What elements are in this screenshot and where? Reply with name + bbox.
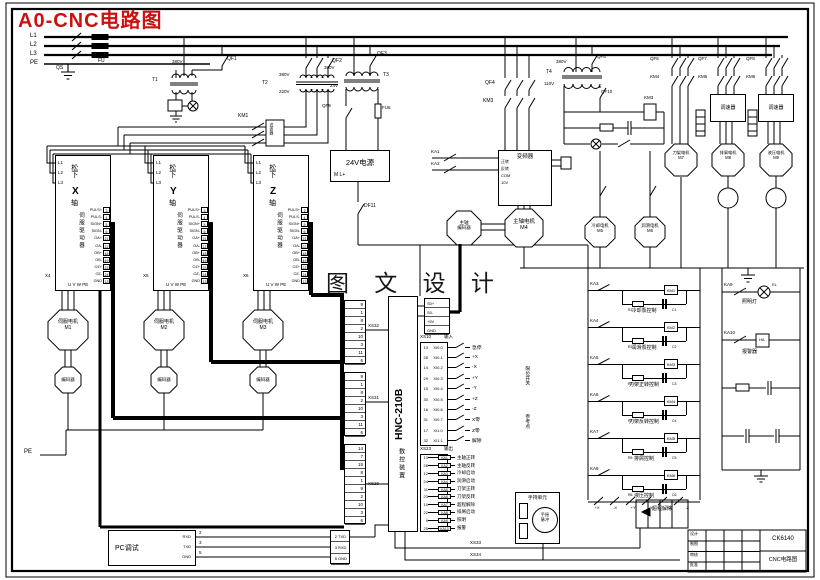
output-terminal-number: 23	[420, 494, 428, 499]
rung-wire	[588, 364, 700, 365]
encoder-2-label: 编码器	[151, 377, 177, 382]
rung-wire	[588, 290, 700, 291]
output-wire	[451, 520, 455, 521]
driver-pin-number: 3	[201, 207, 208, 213]
relay-coil: KA6	[438, 494, 451, 499]
ka2-label: KA2	[431, 162, 440, 167]
overtravel-label: +Y	[630, 505, 635, 510]
output-row: 12 KA3 冷却启动	[420, 470, 540, 478]
connector-pin: 2	[345, 325, 365, 333]
driver-pin-number: 24	[103, 271, 110, 277]
encoder-1-label: 编码器	[55, 377, 81, 382]
psu-title: 24V电源	[331, 157, 389, 168]
cnc-name: 数控装置	[397, 448, 404, 510]
rung-wire	[588, 327, 700, 328]
title-block-code: CK6140	[762, 536, 804, 543]
km3-label: KM3	[483, 99, 493, 105]
driver-pin-number: 48	[103, 250, 110, 256]
xs10-label: XS10	[420, 335, 431, 340]
cnc-model: HNC-210B	[394, 330, 406, 440]
input-switch	[456, 405, 464, 410]
driver-pin-row: SIGN+ 5	[186, 220, 208, 227]
input-terminal-number: 30	[420, 397, 428, 402]
input-terminal-number: 31	[420, 417, 428, 422]
driver-pin-number: 49	[103, 257, 110, 263]
driver-pin-number: 48	[301, 250, 308, 256]
output-signal-label: 报警	[457, 525, 466, 531]
overtravel-switch-label: -Z	[678, 505, 696, 510]
driver-pin-name: OZ+	[186, 265, 200, 269]
ladder-rung: KA4 KM2 R2 C2 润滑泵控制	[588, 315, 700, 352]
rung-function-label: 刀架反转控制	[602, 418, 686, 425]
driver-pin-name: OA+	[88, 236, 102, 240]
pc-pin: TXD	[169, 544, 191, 554]
driver-pin-number: 13	[201, 278, 208, 284]
input-signal-label: +Z	[472, 397, 478, 402]
driver-pin-row: OA+ 21	[88, 235, 110, 242]
fu6-label: FU6	[382, 106, 391, 111]
vfd-pin: COM	[501, 173, 510, 180]
servo-driver-x: L1L2L3 松下 X 轴 伺服驱动器 PULS+ 3 PULS- 4 SIGN…	[55, 155, 111, 291]
output-signal-label: 刀架反转	[457, 494, 475, 500]
ladder-rung: KA7 KM5 R5 C5 排屑控制	[588, 426, 700, 463]
title-block-row-label: 设计	[690, 531, 698, 541]
input-wire	[465, 430, 470, 431]
t1-voltage: 380V	[172, 60, 183, 65]
coil-label: KM4	[667, 399, 675, 404]
motor-m1-label: 伺服电机 M1	[48, 320, 88, 332]
driver-pin-number: 13	[301, 278, 308, 284]
title-block-row-label: 制图	[690, 541, 698, 551]
drive-box-m8: 调速器	[710, 94, 746, 122]
pendant-title: 手持单元	[516, 494, 559, 501]
driver-pin-row: OA- 22	[186, 242, 208, 249]
driver-x-pins: PULS+ 3 PULS- 4 SIGN+ 5 SIGN- 6 OA+ 21 O…	[88, 206, 110, 285]
title-block-row-label: 审核	[690, 552, 698, 562]
vfd-box: 变频器 正转反转COM10V	[498, 150, 552, 206]
input-wire	[448, 419, 456, 420]
input-signal-label: Z零	[472, 427, 480, 434]
pc-pin: GND	[169, 554, 191, 564]
rung-function-label: 润滑泵控制	[602, 344, 686, 351]
input-row: 14 XI0.2 -X	[420, 363, 540, 373]
input-signal-label: -Y	[472, 386, 477, 391]
driver-power-pin: L3	[58, 180, 63, 190]
phase-label-l3: L3	[30, 51, 37, 58]
spindle-motor-id: M4	[504, 225, 544, 231]
contact-label: KA8	[590, 466, 599, 471]
relay-coil: KA1	[438, 455, 451, 460]
driver-pin-name: OB-	[286, 258, 300, 262]
driver-pin-row: OZ- 24	[88, 271, 110, 278]
connector-pin: S0-	[425, 308, 449, 317]
overtravel-release-label: 超程解除	[652, 507, 672, 513]
input-row: 32 XI1.1 解除	[420, 436, 540, 446]
t2-label: T2	[262, 81, 268, 87]
driver-pin-name: OB-	[88, 258, 102, 262]
output-terminal-number: 28	[420, 463, 428, 468]
input-code: XI0.3	[428, 376, 448, 381]
driver-pin-row: OZ- 24	[186, 271, 208, 278]
pendant-connector-2	[519, 523, 528, 539]
driver-pin-name: OZ-	[286, 272, 300, 276]
driver-pin-row: GND 13	[88, 278, 110, 285]
driver-z-pins: PULS+ 3 PULS- 4 SIGN+ 5 SIGN- 6 OA+ 21 O…	[286, 206, 308, 285]
rung-function-label: 排屑控制	[602, 455, 686, 462]
connector-pin: 9	[345, 373, 365, 381]
ladder-rung: KA5 KM3 R3 C3 刀架正转控制	[588, 352, 700, 389]
fu-label: FU	[98, 59, 105, 65]
m1-id: M1	[48, 326, 88, 332]
input-switch	[456, 342, 464, 347]
driver-pin-row: PULS- 4	[286, 213, 308, 220]
output-signal-label: 主轴反转	[457, 463, 475, 469]
m7-id: M7	[665, 156, 697, 161]
branch-wire	[686, 438, 687, 452]
output-signal-label: 主轴正转	[457, 455, 475, 461]
km4-label: KM4	[650, 75, 659, 80]
branch-wire	[686, 327, 687, 341]
driver-pin-row: GND 13	[286, 278, 308, 285]
overtravel-label: -Z	[685, 505, 689, 510]
driver-pin-name: PULS+	[88, 208, 102, 212]
driver-pin-name: OB-	[186, 258, 200, 262]
psu-pins: M L+	[334, 173, 345, 179]
driver-pin-name: GND	[186, 279, 200, 283]
m9-id: M9	[760, 156, 792, 161]
driver-pin-name: OA-	[286, 244, 300, 248]
input-wire	[465, 409, 470, 410]
alarm-label: 报警器	[742, 350, 757, 356]
output-signal-label: 润滑启动	[457, 478, 475, 484]
driver-power-pin: L1	[58, 160, 63, 170]
driver-pin-row: OB+ 48	[286, 249, 308, 256]
driver-y-conn: X5	[143, 274, 149, 279]
contactor-coil: KM2	[664, 322, 678, 332]
driver-power-pin: L1	[156, 160, 161, 170]
input-code: XI1.0	[428, 428, 448, 433]
connector-pin: 3	[345, 341, 365, 349]
output-wire	[428, 473, 438, 474]
input-terminal-number: 13	[420, 345, 428, 350]
driver-pin-number: 22	[201, 243, 208, 249]
input-switch	[456, 384, 464, 389]
output-wire	[451, 481, 455, 482]
xs10-dir-label: 输入	[444, 335, 453, 340]
input-wire	[448, 409, 456, 410]
input-wire	[465, 367, 470, 368]
connector-xs20: 1471581921036	[344, 444, 366, 524]
ka1-label: KA1	[431, 150, 440, 155]
driver-pin-number: 13	[103, 278, 110, 284]
driver-pin-name: SIGN+	[286, 222, 300, 226]
driver-pin-row: PULS- 4	[88, 213, 110, 220]
xs34-label: XS34	[470, 553, 481, 558]
output-signal-label: 冷却启动	[457, 470, 475, 476]
relay-coil: KA8	[438, 510, 451, 515]
overtravel-switch-label: -X	[606, 505, 624, 510]
limit-switch-group-label: 限位开关	[524, 366, 529, 385]
driver-y-brand: 松下	[168, 164, 176, 178]
qf3-label: QF3	[377, 52, 387, 58]
driver-pin-name: OZ-	[88, 272, 102, 276]
driver-pin-number: 4	[201, 214, 208, 220]
coil-label: KM1	[667, 288, 675, 293]
branch-wire	[686, 401, 687, 415]
t3-prim: 380V	[324, 66, 335, 71]
driver-pin-name: SIGN+	[88, 222, 102, 226]
input-terminal-number: 15	[420, 386, 428, 391]
qf10-label: QF10	[601, 90, 612, 95]
spindle-encoder-label: 主轴 编码器	[447, 220, 481, 230]
connector-pin: 3	[345, 413, 365, 421]
qf9-label: QF9	[322, 104, 331, 109]
output-wire	[428, 489, 438, 490]
driver-pin-number: 49	[301, 257, 308, 263]
m2-id: M2	[144, 326, 184, 332]
input-row: 17 XI1.0 Z零	[420, 425, 540, 435]
qf2-label: QF2	[332, 59, 342, 65]
driver-pin-name: OA+	[186, 236, 200, 240]
connector-pin: 9	[345, 301, 365, 309]
input-code: XI0.6	[428, 407, 448, 412]
phase-label-l1: L1	[30, 33, 37, 40]
driver-pin-row: OZ+ 23	[88, 264, 110, 271]
driver-power-pin: L3	[156, 180, 161, 190]
driver-power-pin: L2	[156, 170, 161, 180]
input-wire	[465, 347, 470, 348]
driver-pin-row: OB+ 48	[88, 249, 110, 256]
branch-wire	[622, 290, 623, 304]
branch-wire	[622, 364, 623, 378]
motor-m2-label: 伺服电机 M2	[144, 320, 184, 332]
output-wire	[428, 496, 438, 497]
branch-wire	[622, 327, 623, 341]
qf8-label: QF8	[746, 57, 755, 62]
driver-x-role: 伺服驱动器	[78, 212, 84, 282]
input-code: XI0.7	[428, 417, 448, 422]
driver-pin-row: OZ- 24	[286, 271, 308, 278]
motor-m7-label: 刀架电机 M7	[665, 151, 697, 161]
input-wire	[465, 419, 470, 420]
input-wire	[448, 388, 456, 389]
driver-pin-name: SIGN-	[186, 229, 200, 233]
relay-ladder: KA3 KM1 R1 C1 冷却泵控制 KA4 KM2 R2 C2 润滑泵控制	[588, 278, 700, 500]
pc-debug-box: PC调试 RXDTXDGND	[108, 530, 196, 566]
connector-pin: 8	[345, 469, 365, 477]
handwheel-line2: 脉冲	[532, 518, 558, 523]
input-signal-label: +X	[472, 355, 478, 360]
pc-pin-list: RXDTXDGND	[169, 534, 191, 564]
driver-pin-number: 22	[103, 243, 110, 249]
driver-z-conn: X6	[243, 274, 249, 279]
serial-pin-number: 2	[331, 534, 337, 539]
qf5-label: QF5	[597, 55, 606, 60]
driver-x-conn: X4	[45, 274, 51, 279]
output-wire	[451, 473, 455, 474]
input-terminal-number: 32	[420, 438, 428, 443]
driver-pin-name: GND	[286, 279, 300, 283]
driver-pin-row: SIGN+ 5	[88, 220, 110, 227]
t4-sec: 110V	[544, 82, 554, 87]
driver-pin-row: SIGN- 6	[88, 228, 110, 235]
connector-xs9: S0+S0-+5VGND	[424, 298, 450, 334]
km1-label: KM1	[238, 114, 248, 120]
output-signal-label: 排屑启动	[457, 509, 475, 515]
output-wire	[428, 512, 438, 513]
t3-sec: 24V	[330, 84, 338, 89]
contactor-coil: KM1	[664, 285, 678, 295]
output-wire	[428, 520, 438, 521]
input-row: 16 XI0.6 -Z	[420, 404, 540, 414]
xs33-label: XS33	[470, 541, 481, 546]
contact-label: KA4	[590, 318, 599, 323]
connector-xs31: 9182103116	[344, 372, 366, 436]
connector-pin: 9	[345, 485, 365, 493]
ref-point-group-label: 参考点	[524, 414, 529, 428]
input-code: XI1.1	[428, 438, 448, 443]
alarm-device-label: HA	[759, 338, 765, 342]
pc-wire-num-1: 2	[199, 531, 202, 536]
fuse-fu	[92, 35, 108, 58]
driver-pin-number: 21	[201, 235, 208, 241]
driver-pin-row: OB- 49	[186, 256, 208, 263]
connector-pin: 6	[345, 429, 365, 437]
branch-wire	[686, 364, 687, 378]
driver-pin-number: 3	[301, 207, 308, 213]
t4-label: T4	[546, 70, 552, 76]
driver-pin-row: PULS- 4	[186, 213, 208, 220]
t1-label: T1	[152, 78, 158, 84]
branch-wire	[622, 475, 623, 489]
lamp-label: EL	[772, 283, 777, 287]
connector-serial: 2 TXD 3 RXD 5 GND	[330, 530, 350, 564]
output-terminal-number: 25	[420, 526, 428, 531]
transformer-t4	[562, 37, 664, 149]
phase-label-l2: L2	[30, 42, 37, 49]
contactor-coil: KM6	[664, 470, 678, 480]
spindle-encoder-line2: 编码器	[447, 225, 481, 230]
input-code: XI0.2	[428, 365, 448, 370]
driver-x-bottom-pins: U V W PE	[68, 283, 88, 288]
spindle-motor-label: 主轴电机 M4	[504, 219, 544, 232]
driver-y-pins: PULS+ 3 PULS- 4 SIGN+ 5 SIGN- 6 OA+ 21 O…	[186, 206, 208, 285]
input-wire	[465, 378, 470, 379]
driver-pin-number: 4	[103, 214, 110, 220]
driver-pin-row: SIGN- 6	[186, 228, 208, 235]
driver-pin-name: OZ-	[186, 272, 200, 276]
driver-pin-name: OA+	[286, 236, 300, 240]
driver-pin-name: OA-	[186, 244, 200, 248]
input-signal-label: X零	[472, 416, 480, 423]
driver-pin-number: 21	[301, 235, 308, 241]
contact-label: KA3	[590, 281, 599, 286]
input-row: 15 XI0.4 -Y	[420, 384, 540, 394]
driver-pin-number: 3	[103, 207, 110, 213]
t2-prim: 380V	[279, 73, 290, 78]
coil-label: KM6	[667, 473, 675, 478]
input-row: 29 XI0.3 +Y	[420, 373, 540, 383]
driver-pin-name: PULS+	[186, 208, 200, 212]
serial-pin-row: 3 RXD	[331, 542, 349, 553]
output-terminal-number: 24	[420, 479, 428, 484]
driver-pin-name: OB+	[286, 251, 300, 255]
servo-driver-y: L1L2L3 松下 Y 轴 伺服驱动器 PULS+ 3 PULS- 4 SIGN…	[153, 155, 209, 291]
km5-label: KM5	[698, 75, 707, 80]
qf6-label: QF6	[650, 57, 659, 62]
driver-pin-row: OZ+ 23	[186, 264, 208, 271]
rung-wire	[588, 475, 700, 476]
driver-pin-row: PULS+ 3	[286, 206, 308, 213]
contactor-coil: KM3	[664, 359, 678, 369]
ka10-label: KA10	[724, 331, 735, 336]
output-row: 28 KA2 主轴反转	[420, 462, 540, 470]
df11-label: DF11	[364, 204, 376, 210]
driver-pin-name: PULS+	[286, 208, 300, 212]
transformer-t1	[168, 37, 228, 122]
input-switch	[456, 394, 464, 399]
coil-label: KM3	[667, 362, 675, 367]
xs32-label: XS32	[368, 324, 379, 329]
km6-label: KM6	[746, 75, 755, 80]
contact-label: KA5	[590, 355, 599, 360]
driver-pin-number: 6	[201, 228, 208, 234]
output-terminal-number: 9	[420, 518, 428, 523]
rung-function-label: 冷却泵控制	[602, 307, 686, 314]
driver-pin-name: PULS-	[286, 215, 300, 219]
driver-z-suffix: 轴	[269, 200, 276, 208]
driver-y-role: 伺服驱动器	[176, 212, 182, 282]
connector-pin: 14	[345, 445, 365, 453]
motor-m6-label: 润滑电机 M6	[634, 224, 666, 234]
output-wire	[451, 528, 455, 529]
rung-wire	[588, 401, 700, 402]
branch-wire	[622, 438, 623, 452]
xs23-label: XS23	[420, 447, 431, 452]
coil-label: KM2	[667, 325, 675, 330]
relay-coil: KA5	[438, 487, 451, 492]
input-signal-label: 解除	[472, 437, 482, 444]
driver-pin-row: OA- 22	[286, 242, 308, 249]
output-wire	[428, 457, 438, 458]
driver-pin-name: OA-	[88, 244, 102, 248]
contact-label: KA7	[590, 429, 599, 434]
input-wire	[465, 440, 470, 441]
m8-id: M8	[712, 156, 744, 161]
output-wire	[451, 496, 455, 497]
driver-pin-row: PULS+ 3	[88, 206, 110, 213]
driver-y-lpins: L1L2L3	[156, 160, 161, 190]
vfd-pin-list: 正转反转COM10V	[501, 159, 510, 187]
km3-coil-label: KM3	[644, 96, 653, 101]
connector-pin: 11	[345, 421, 365, 429]
driver-pin-number: 5	[301, 221, 308, 227]
driver-pin-number: 48	[201, 250, 208, 256]
m6-id: M6	[634, 229, 666, 234]
driver-power-pin: L2	[256, 170, 261, 180]
input-signal-label: 急停	[472, 344, 482, 351]
output-wire	[451, 512, 455, 513]
output-terminal-number: 11	[420, 487, 428, 492]
driver-pin-number: 5	[103, 221, 110, 227]
driver-pin-row: PULS+ 3	[186, 206, 208, 213]
connector-pin: 1	[345, 477, 365, 485]
lighting-label: 照明灯	[742, 300, 757, 306]
vfd-pin: 正转	[501, 159, 510, 166]
contact-label: KA6	[590, 392, 599, 397]
input-row: 31 XI0.7 X零	[420, 415, 540, 425]
cad-drawing-page: A0-CNC电路图 图 文 设 计 L1 L2 L3 PE QS FU T1 3…	[0, 0, 820, 580]
